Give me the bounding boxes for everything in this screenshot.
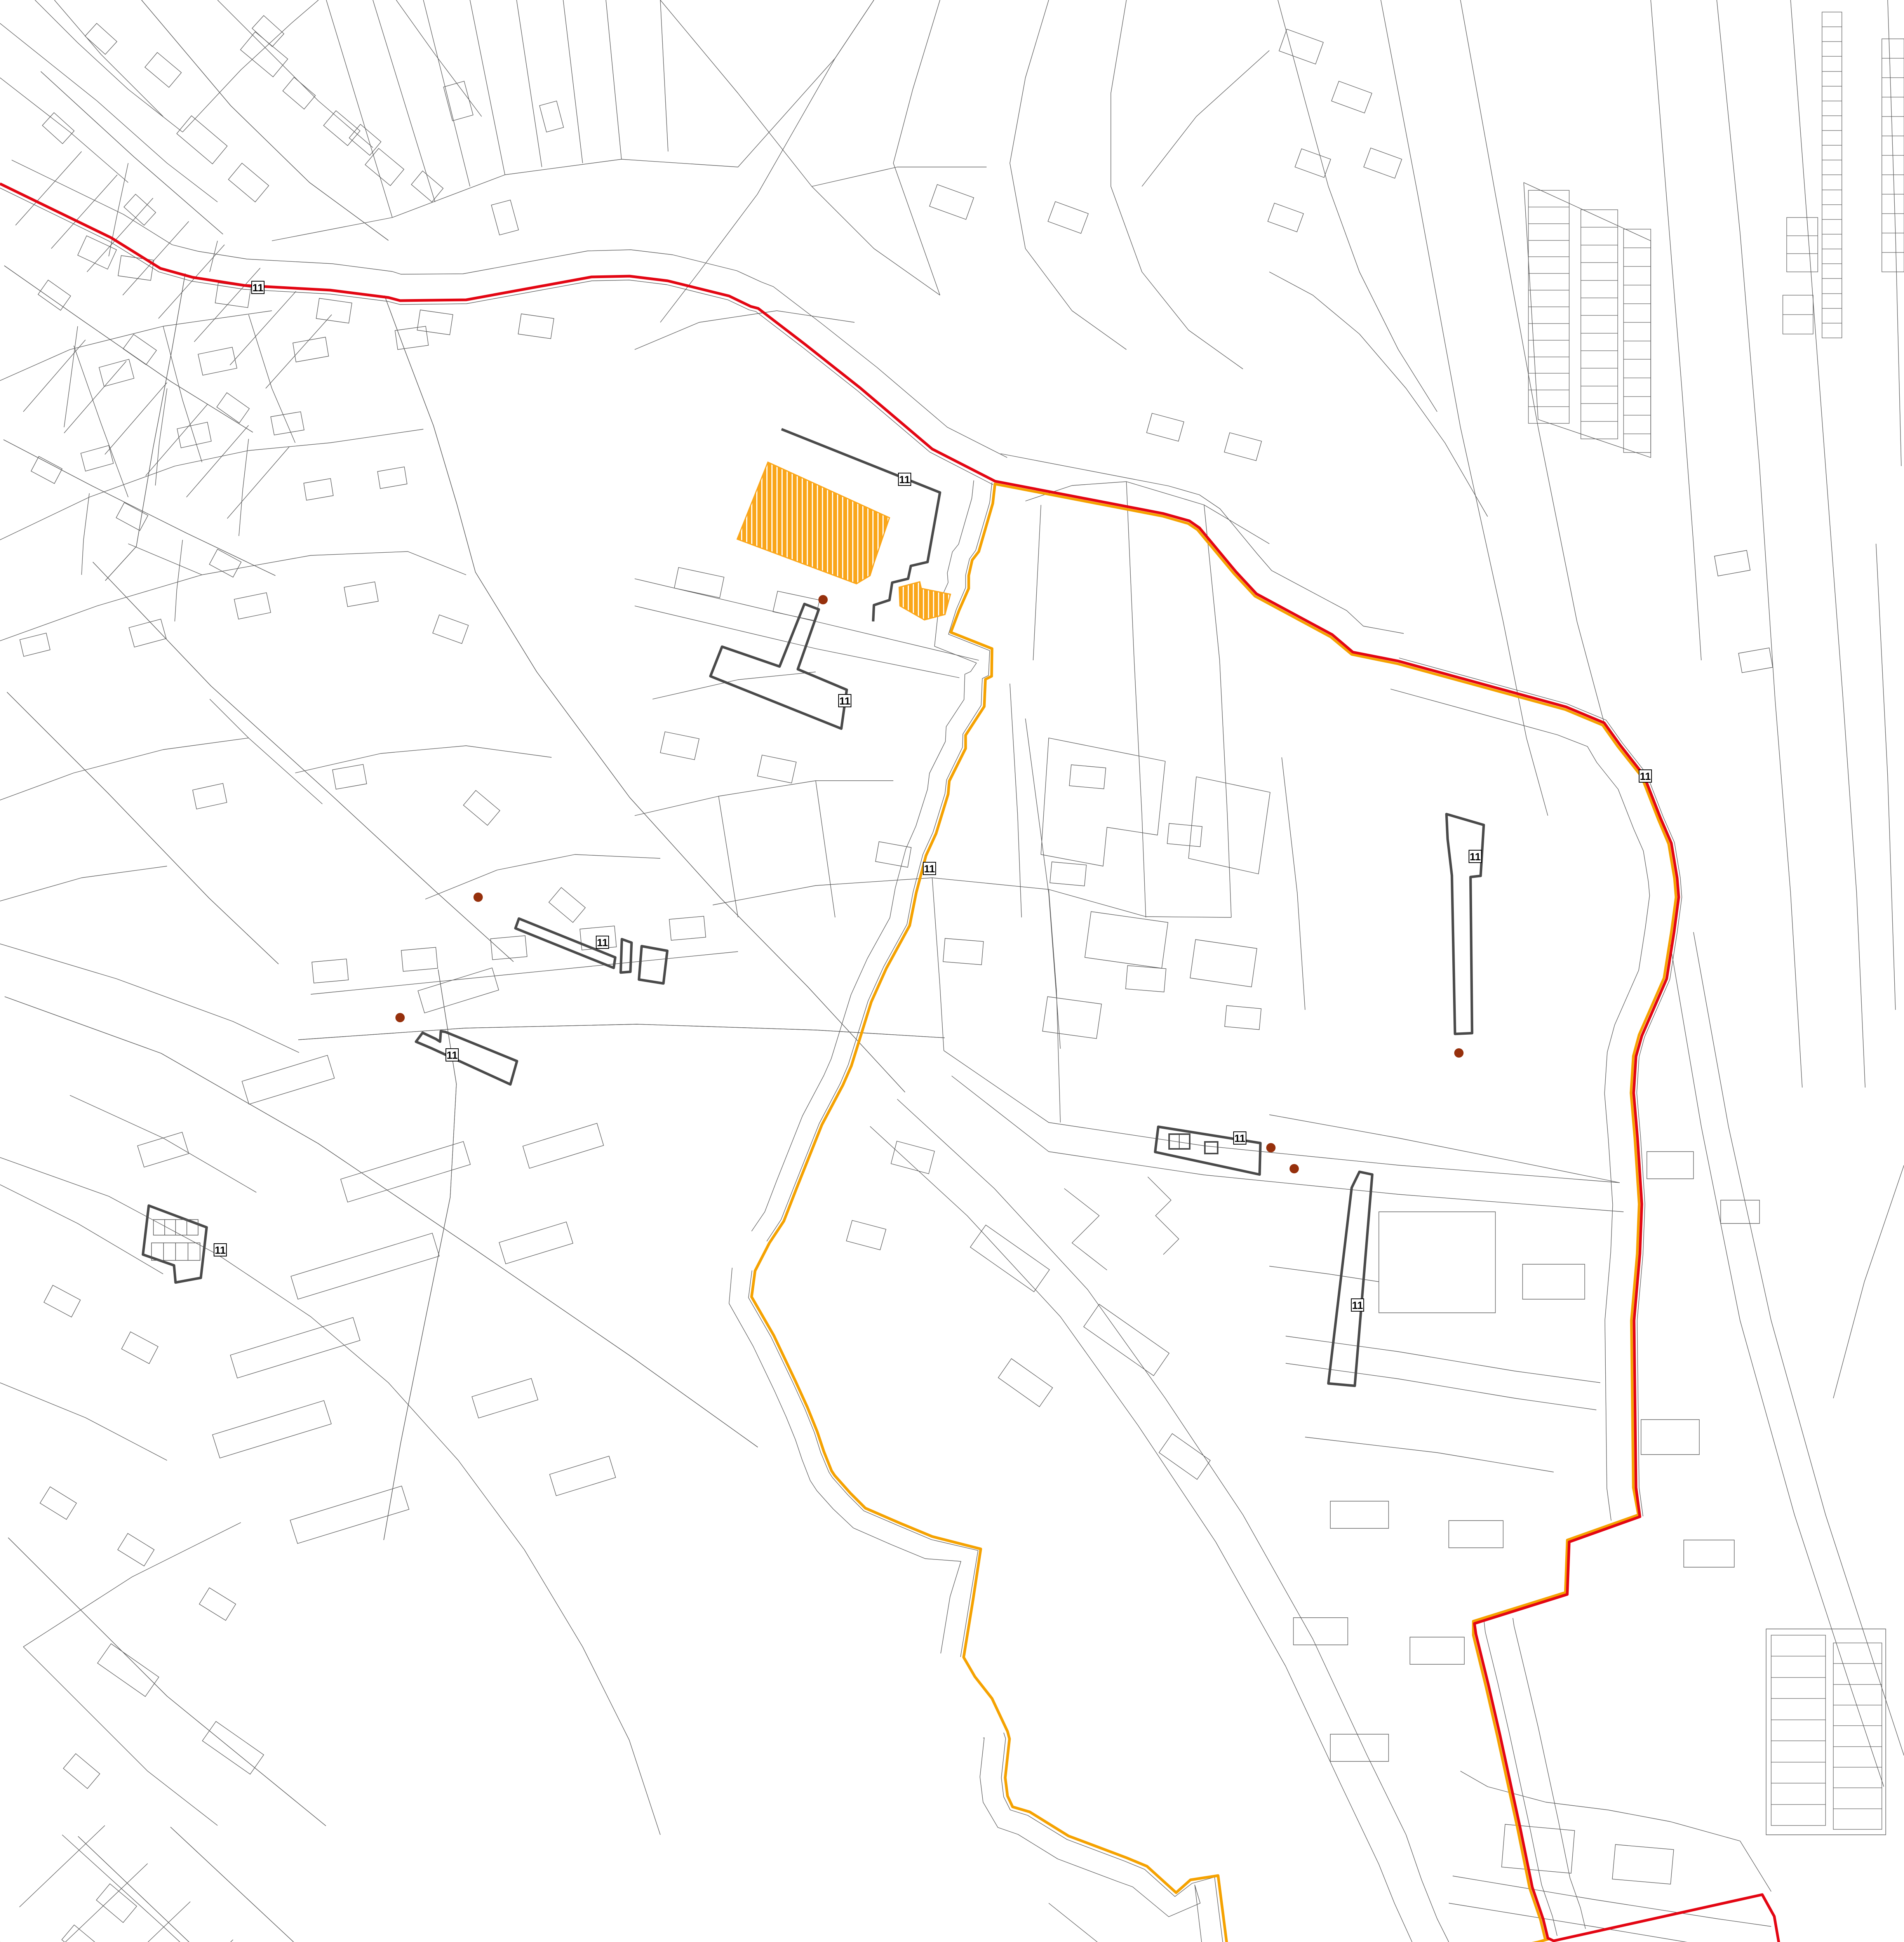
svg-text:11: 11: [447, 1049, 458, 1061]
svg-text:11: 11: [1234, 1133, 1246, 1144]
svg-text:11: 11: [839, 695, 851, 707]
svg-text:11: 11: [252, 282, 264, 294]
svg-text:11: 11: [924, 863, 935, 875]
svg-text:11: 11: [1352, 1300, 1363, 1311]
svg-text:11: 11: [899, 474, 910, 486]
svg-text:11: 11: [597, 937, 608, 948]
svg-text:11: 11: [1640, 771, 1651, 782]
svg-text:11: 11: [215, 1244, 226, 1256]
svg-text:11: 11: [1470, 851, 1481, 863]
